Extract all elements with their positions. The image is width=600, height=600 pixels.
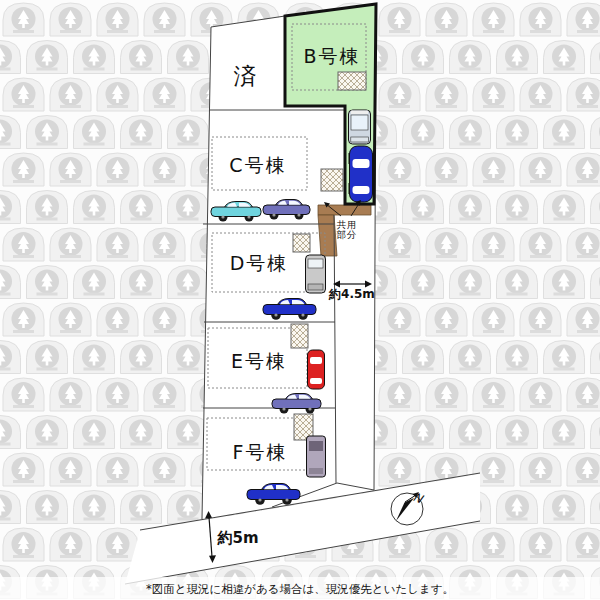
plot-e-entrance-hatch xyxy=(291,324,308,348)
shared-driveway-band xyxy=(318,205,371,215)
road-width-south-label: 約5m xyxy=(216,529,258,547)
site-plan-svg: 済 B号棟 C号棟 D号棟 E号棟 F号棟 共用 部分 約4.5m 約5m N … xyxy=(0,0,600,600)
road-width-east-arrow: 約4.5m xyxy=(328,281,375,302)
plot-c-label: C号棟 xyxy=(229,154,286,176)
plot-c-entrance-hatch xyxy=(321,169,343,191)
disclaimer-text: *図面と現況に相違がある場合は、現況優先といたします。 xyxy=(146,582,454,596)
plot-b-label: B号棟 xyxy=(303,45,360,67)
car-van-top-d xyxy=(306,255,326,293)
car-van-top-b xyxy=(349,110,371,144)
shared-area-label-line2: 部分 xyxy=(337,229,358,240)
plot-e-label: E号棟 xyxy=(231,350,287,372)
plot-d-label: D号棟 xyxy=(230,252,289,274)
car-sedan-top-b xyxy=(349,146,374,202)
plot-f-label: F号棟 xyxy=(233,441,288,463)
road-width-east-label: 約4.5m xyxy=(328,287,375,301)
site-plan-page: 済 B号棟 C号棟 D号棟 E号棟 F号棟 共用 部分 約4.5m 約5m N … xyxy=(0,0,600,600)
plot-b-entrance-hatch xyxy=(338,72,366,90)
car-compact-top-e xyxy=(308,350,325,389)
car-van-top-f xyxy=(307,436,326,477)
plot-d-entrance-hatch xyxy=(293,234,310,252)
plot-a-sold-label: 済 xyxy=(234,63,257,89)
